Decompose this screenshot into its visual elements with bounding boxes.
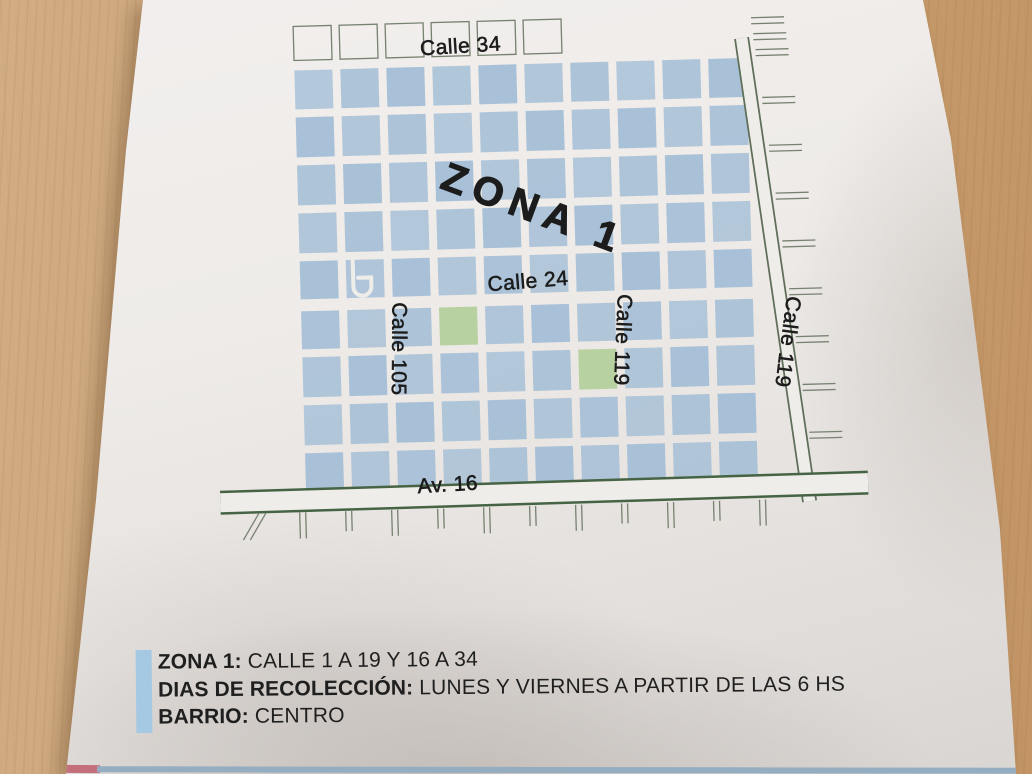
city-block — [531, 304, 570, 343]
city-block — [669, 300, 708, 339]
city-block — [486, 351, 525, 392]
city-block — [297, 164, 336, 205]
street-stub — [751, 17, 784, 18]
city-block — [350, 403, 389, 444]
city-block — [666, 202, 705, 243]
outlined-block — [293, 25, 332, 60]
city-block — [390, 210, 429, 251]
city-block — [488, 399, 527, 440]
city-block — [389, 162, 428, 203]
city-block — [570, 62, 609, 102]
street-stub — [714, 501, 715, 521]
street-stub — [398, 510, 399, 536]
info-zone-label: ZONA 1: — [158, 650, 242, 674]
city-block — [711, 153, 750, 194]
under-flyer-pink-edge — [60, 765, 100, 773]
city-block — [573, 157, 612, 198]
city-block — [616, 60, 655, 100]
city-block — [670, 346, 709, 387]
city-block — [305, 452, 344, 489]
street-stub — [751, 23, 784, 24]
street-stub — [796, 342, 829, 343]
street-stub — [484, 507, 485, 533]
city-block — [301, 310, 340, 349]
city-block — [396, 402, 435, 443]
flyer-paper-wrap: Calle 34 Calle 24 Av. 16 Calle 105 Calle… — [0, 0, 1032, 774]
street-stub — [628, 503, 629, 523]
city-block — [342, 115, 381, 156]
street-stub — [762, 103, 795, 104]
street-stub — [762, 97, 795, 98]
street-stub — [346, 511, 347, 531]
city-block — [715, 299, 754, 338]
street-stub — [753, 33, 786, 34]
street-stub — [674, 502, 675, 528]
city-block — [577, 303, 616, 342]
street-stub — [769, 150, 802, 151]
street-stub — [668, 502, 669, 528]
city-block — [716, 345, 755, 386]
info-text-block: ZONA 1: CALLE 1 A 19 Y 16 A 34 DIAS DE R… — [158, 641, 989, 731]
info-zone-value: CALLE 1 A 19 Y 16 A 34 — [248, 648, 478, 673]
city-block — [581, 445, 620, 482]
city-block — [442, 400, 481, 441]
street-stub — [576, 505, 577, 531]
city-block — [535, 446, 574, 483]
street-stub — [766, 500, 767, 526]
city-block — [627, 443, 666, 480]
info-days-label: DIAS DE RECOLECCIÓN: — [158, 676, 413, 701]
street-stub — [530, 506, 531, 526]
outlined-block — [523, 19, 562, 54]
street-stub — [809, 437, 842, 438]
street-stub — [720, 501, 721, 521]
street-stub — [536, 506, 537, 526]
street-stub — [300, 513, 301, 539]
outlined-block — [385, 23, 424, 58]
city-block — [714, 249, 753, 288]
info-barrio-label: BARRIO: — [158, 705, 249, 729]
city-block — [392, 258, 431, 297]
street-stub — [776, 192, 809, 193]
street-label-av-16: Av. 16 — [417, 472, 479, 499]
street-stub — [243, 514, 260, 540]
city-block — [438, 257, 477, 296]
street-stub — [809, 431, 842, 432]
city-block — [668, 250, 707, 289]
city-block — [534, 398, 573, 439]
street-stub — [769, 144, 802, 145]
city-block — [524, 63, 563, 103]
street-stub — [582, 505, 583, 531]
city-block — [302, 356, 341, 397]
city-block — [719, 441, 758, 478]
street-label-calle-119-mid: Calle 119 — [609, 294, 636, 387]
street-stub — [490, 507, 491, 533]
park-block — [439, 306, 478, 345]
street-stub — [760, 500, 761, 526]
city-block — [296, 116, 335, 157]
city-block — [343, 163, 382, 204]
city-block — [672, 394, 711, 435]
city-block — [712, 201, 751, 242]
street-stub — [803, 384, 836, 385]
city-block — [622, 251, 661, 290]
street-stub — [789, 294, 822, 295]
street-stub — [753, 39, 786, 40]
city-block — [673, 442, 712, 479]
street-stub — [756, 55, 789, 56]
city-block — [665, 154, 704, 195]
flyer-paper: Calle 34 Calle 24 Av. 16 Calle 105 Calle… — [0, 0, 1032, 774]
street-stub — [783, 246, 816, 247]
city-block — [619, 155, 658, 196]
city-block — [344, 211, 383, 252]
city-block — [436, 209, 475, 250]
info-barrio-value: CENTRO — [255, 704, 345, 728]
street-stub — [352, 511, 353, 531]
city-block — [432, 66, 471, 106]
city-block — [572, 109, 611, 150]
street-stub — [622, 504, 623, 524]
street-stub — [782, 240, 815, 241]
city-block — [340, 68, 379, 108]
city-block — [489, 447, 528, 484]
city-block — [386, 67, 425, 107]
street-stub — [444, 509, 445, 529]
city-block — [709, 105, 748, 146]
city-block — [348, 355, 387, 396]
street-stub — [789, 288, 822, 289]
street-stub — [803, 390, 836, 391]
street-label-calle-34: Calle 34 — [419, 32, 501, 60]
info-accent-bar — [136, 650, 153, 733]
city-block — [618, 107, 657, 148]
city-block — [526, 110, 565, 151]
city-block — [626, 395, 665, 436]
outlined-block — [339, 24, 378, 59]
city-block — [294, 69, 333, 109]
city-block — [662, 59, 701, 99]
city-block — [532, 350, 571, 391]
city-block — [304, 404, 343, 445]
city-block — [434, 113, 473, 154]
street-stub — [755, 49, 788, 50]
street-stub — [392, 510, 393, 536]
city-block — [478, 64, 517, 104]
street-stub — [250, 513, 267, 539]
street-stub — [776, 198, 809, 199]
city-block — [664, 106, 703, 147]
street-stub — [306, 512, 307, 538]
city-block — [480, 111, 519, 152]
info-days-value: LUNES Y VIERNES A PARTIR DE LAS 6 HS — [419, 672, 845, 699]
city-block — [388, 114, 427, 155]
city-block — [298, 212, 337, 253]
street-stub — [438, 509, 439, 529]
city-block — [485, 305, 524, 344]
city-block — [347, 309, 386, 348]
city-block — [580, 397, 619, 438]
city-block — [351, 451, 390, 488]
city-block — [440, 352, 479, 393]
street-label-calle-105: Calle 105 — [387, 302, 411, 395]
city-block — [718, 393, 757, 434]
city-block — [300, 260, 339, 299]
